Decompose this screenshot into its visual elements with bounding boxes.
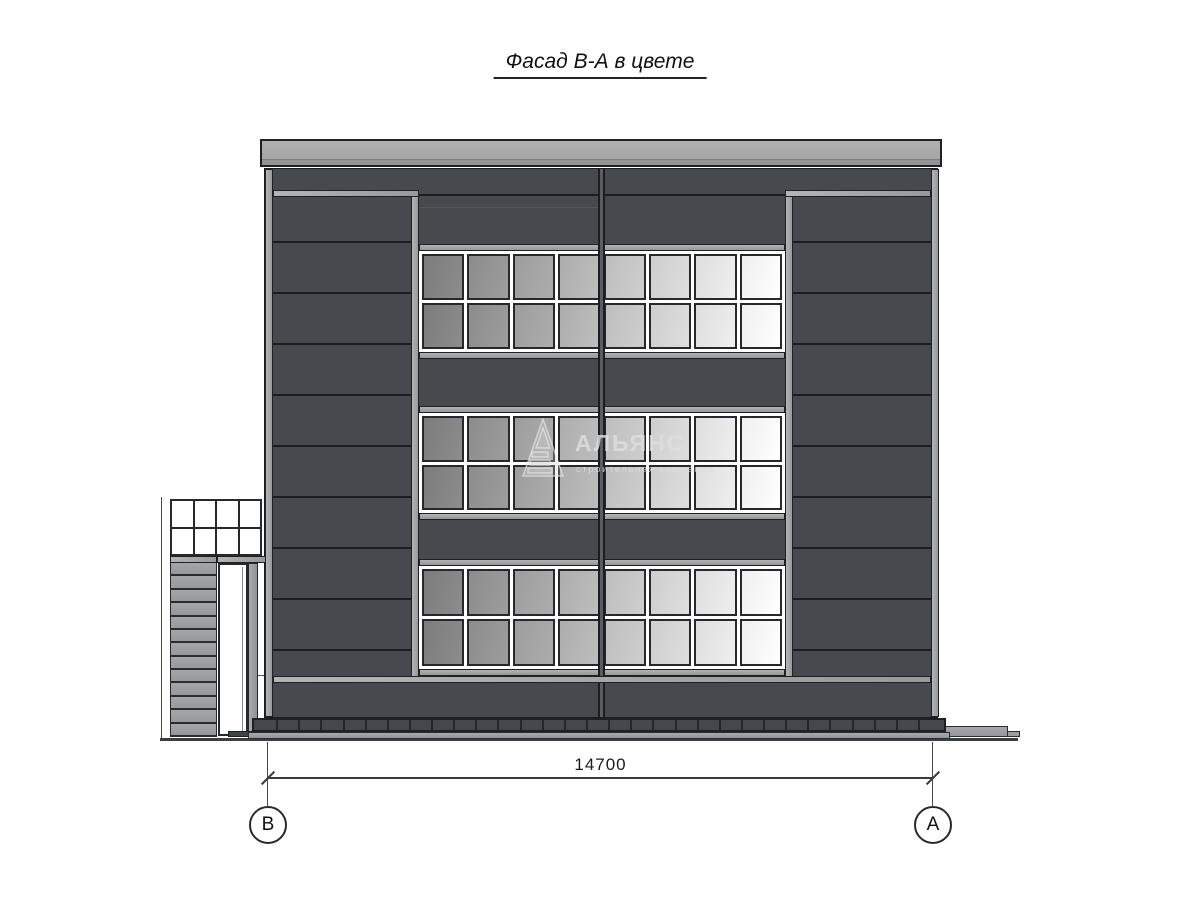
window-pane xyxy=(649,254,691,300)
door-side-gap xyxy=(258,563,264,676)
window-pane xyxy=(694,303,736,349)
canopy-glass-pane xyxy=(240,529,261,555)
plinth-tile-joint xyxy=(829,720,831,730)
center-mullion xyxy=(598,169,605,717)
window-pane xyxy=(604,465,646,511)
canopy-glass-pane xyxy=(195,529,216,555)
right-ramp-step xyxy=(1007,731,1020,737)
window-pane xyxy=(558,569,600,616)
plinth-tile-joint xyxy=(453,720,455,730)
wall-panel-joint xyxy=(793,241,931,243)
plinth-tile-joint xyxy=(807,720,809,730)
plinth-tile-joint xyxy=(365,720,367,730)
stair-step xyxy=(171,697,216,710)
plinth-tile-joint xyxy=(475,720,477,730)
window-pane xyxy=(422,619,464,666)
plinth-tile-joint xyxy=(852,720,854,730)
wall-panel-joint xyxy=(793,394,931,396)
base-band xyxy=(248,732,950,739)
stair-step xyxy=(171,630,216,643)
window-left-pilaster xyxy=(411,190,419,683)
plinth-tile-joint xyxy=(586,720,588,730)
plinth-tile-joint xyxy=(298,720,300,730)
window-pane xyxy=(467,619,509,666)
window-pane xyxy=(649,569,691,616)
wall-panel-joint xyxy=(793,547,931,549)
plinth-tile-joint xyxy=(896,720,898,730)
wall-panel-joint xyxy=(793,292,931,294)
window-pane xyxy=(422,465,464,511)
wall-panel-joint xyxy=(273,649,411,651)
window-pane xyxy=(694,254,736,300)
wall-panel-joint xyxy=(793,343,931,345)
entrance-door xyxy=(218,563,248,736)
window-pane xyxy=(513,303,555,349)
left-wall-top-strip xyxy=(273,190,419,197)
wall-panel-joint xyxy=(273,445,411,447)
facade-drawing-sheet: Фасад В-А в цвете 14700 xyxy=(0,0,1200,900)
window-pane xyxy=(740,254,782,300)
stair-step xyxy=(171,603,216,616)
stair-step xyxy=(171,657,216,670)
wall-panel-joint xyxy=(793,496,931,498)
plinth-tile-joint xyxy=(409,720,411,730)
wall-panel-joint xyxy=(273,394,411,396)
axis-marker-v: В xyxy=(249,806,287,844)
window-pane xyxy=(694,416,736,462)
window-pane xyxy=(649,465,691,511)
dimension-line xyxy=(268,777,933,779)
plinth-tile-joint xyxy=(276,720,278,730)
plinth-tile-joint xyxy=(564,720,566,730)
window-pane xyxy=(422,416,464,462)
window-pane xyxy=(694,569,736,616)
canopy-glass-pane xyxy=(172,501,193,527)
wall-panel-joint xyxy=(273,343,411,345)
window-pane xyxy=(513,416,555,462)
plinth-tile-joint xyxy=(343,720,345,730)
facade-body xyxy=(264,168,938,718)
canopy-glass-pane xyxy=(217,529,238,555)
stairs xyxy=(170,563,217,737)
facade-right-edge-trim xyxy=(931,169,939,717)
window-pane xyxy=(649,303,691,349)
window-pane xyxy=(467,416,509,462)
plinth-tile-joint xyxy=(630,720,632,730)
drawing-title: Фасад В-А в цвете xyxy=(494,50,707,79)
axis-marker-a: А xyxy=(914,806,952,844)
plinth-tile-joint xyxy=(719,720,721,730)
wall-panel-joint xyxy=(273,547,411,549)
window-pane xyxy=(513,254,555,300)
stair-step xyxy=(171,617,216,630)
plinth-tile-joint xyxy=(918,720,920,730)
annex-canopy-glazing xyxy=(170,499,262,556)
window-pane xyxy=(558,619,600,666)
window-pane xyxy=(604,416,646,462)
window-right-pilaster xyxy=(785,190,793,683)
window-pane xyxy=(467,569,509,616)
plinth-tile-joint xyxy=(652,720,654,730)
right-ramp xyxy=(944,726,1008,737)
stair-step xyxy=(171,683,216,696)
wall-panel-joint xyxy=(793,445,931,447)
canopy-glass-pane xyxy=(217,501,238,527)
window-pane xyxy=(604,569,646,616)
stair-step xyxy=(171,576,216,589)
stairs-top-strip xyxy=(170,556,217,563)
plinth-tile-joint xyxy=(320,720,322,730)
wall-panel-joint xyxy=(273,292,411,294)
window-pane xyxy=(694,619,736,666)
canopy-glass-pane xyxy=(240,501,261,527)
plinth-tile-joint xyxy=(675,720,677,730)
plinth-tile-joint xyxy=(431,720,433,730)
window-pane xyxy=(740,619,782,666)
wall-panel-joint xyxy=(273,241,411,243)
door-frame-strip xyxy=(248,563,258,736)
window-pane xyxy=(422,254,464,300)
stair-step xyxy=(171,643,216,656)
window-pane xyxy=(467,303,509,349)
window-pane xyxy=(422,569,464,616)
window-pane xyxy=(467,254,509,300)
canopy-glass-pane xyxy=(172,529,193,555)
plinth-tile-joint xyxy=(874,720,876,730)
window-pane xyxy=(604,303,646,349)
window-pane xyxy=(513,619,555,666)
plinth-tile-joint xyxy=(785,720,787,730)
axis-letter-v: В xyxy=(262,814,275,836)
window-pane xyxy=(513,569,555,616)
facade-bottom-strip xyxy=(273,676,931,683)
plinth-tile-joint xyxy=(741,720,743,730)
facade-left-edge-trim xyxy=(265,169,273,717)
wall-panel-joint xyxy=(793,598,931,600)
canopy-glass-pane xyxy=(195,501,216,527)
wall-panel-joint xyxy=(273,496,411,498)
stair-step xyxy=(171,563,216,576)
stair-step xyxy=(171,670,216,683)
plinth-tile-joint xyxy=(387,720,389,730)
annex-railing-line xyxy=(161,497,162,738)
dimension-value: 14700 xyxy=(268,755,933,775)
window-pane xyxy=(513,465,555,511)
window-pane xyxy=(558,465,600,511)
right-wall-top-strip xyxy=(785,190,931,197)
window-pane xyxy=(422,303,464,349)
window-pane xyxy=(604,619,646,666)
stair-step xyxy=(171,710,216,723)
roof-parapet xyxy=(260,139,942,167)
window-pane xyxy=(649,416,691,462)
window-pane xyxy=(604,254,646,300)
axis-letter-a: А xyxy=(927,814,940,836)
window-pane xyxy=(740,569,782,616)
wall-panel-joint xyxy=(273,598,411,600)
window-pane xyxy=(558,254,600,300)
stair-step xyxy=(171,590,216,603)
window-pane xyxy=(694,465,736,511)
plinth-tile-joint xyxy=(497,720,499,730)
plinth-tile-joint xyxy=(520,720,522,730)
plinth-tile-joint xyxy=(763,720,765,730)
plinth xyxy=(252,718,946,732)
window-pane xyxy=(467,465,509,511)
wall-panel-joint xyxy=(793,649,931,651)
window-pane xyxy=(649,619,691,666)
window-pane xyxy=(558,303,600,349)
door-leaf-joint xyxy=(242,567,243,732)
window-pane xyxy=(740,465,782,511)
stair-step xyxy=(171,724,216,737)
window-pane xyxy=(740,416,782,462)
plinth-tile-joint xyxy=(542,720,544,730)
center-panel-faint-joint xyxy=(419,207,601,208)
plinth-tile-joint xyxy=(697,720,699,730)
door-header-strip xyxy=(217,556,266,563)
roof-parapet-edge xyxy=(262,159,940,165)
window-pane xyxy=(740,303,782,349)
plinth-tile-joint xyxy=(608,720,610,730)
window-pane xyxy=(558,416,600,462)
